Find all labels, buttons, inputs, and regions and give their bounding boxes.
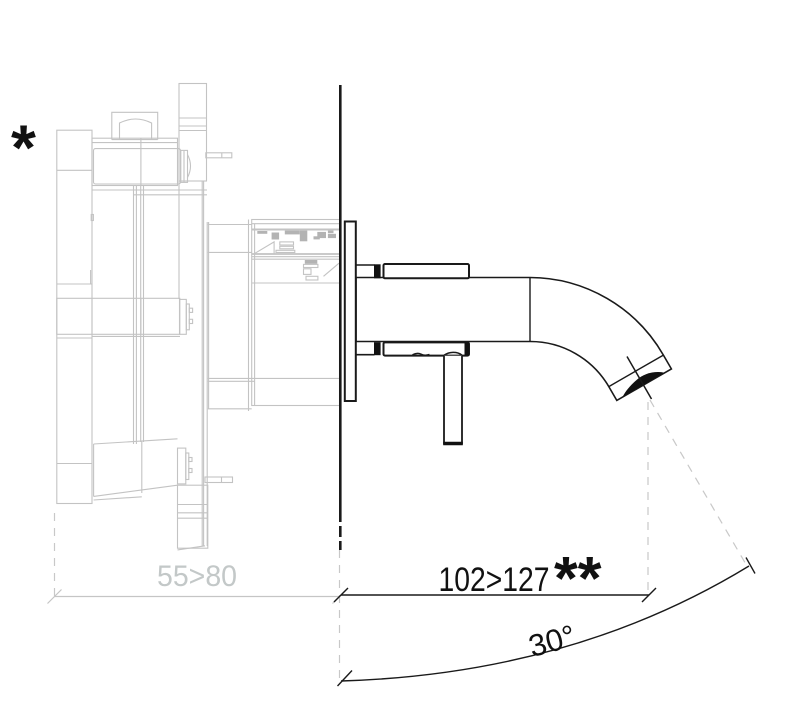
svg-text:*: * [11,112,36,184]
svg-text:**: ** [554,544,602,612]
svg-text:102>127: 102>127 [439,561,550,599]
svg-text:55>80: 55>80 [157,560,237,593]
